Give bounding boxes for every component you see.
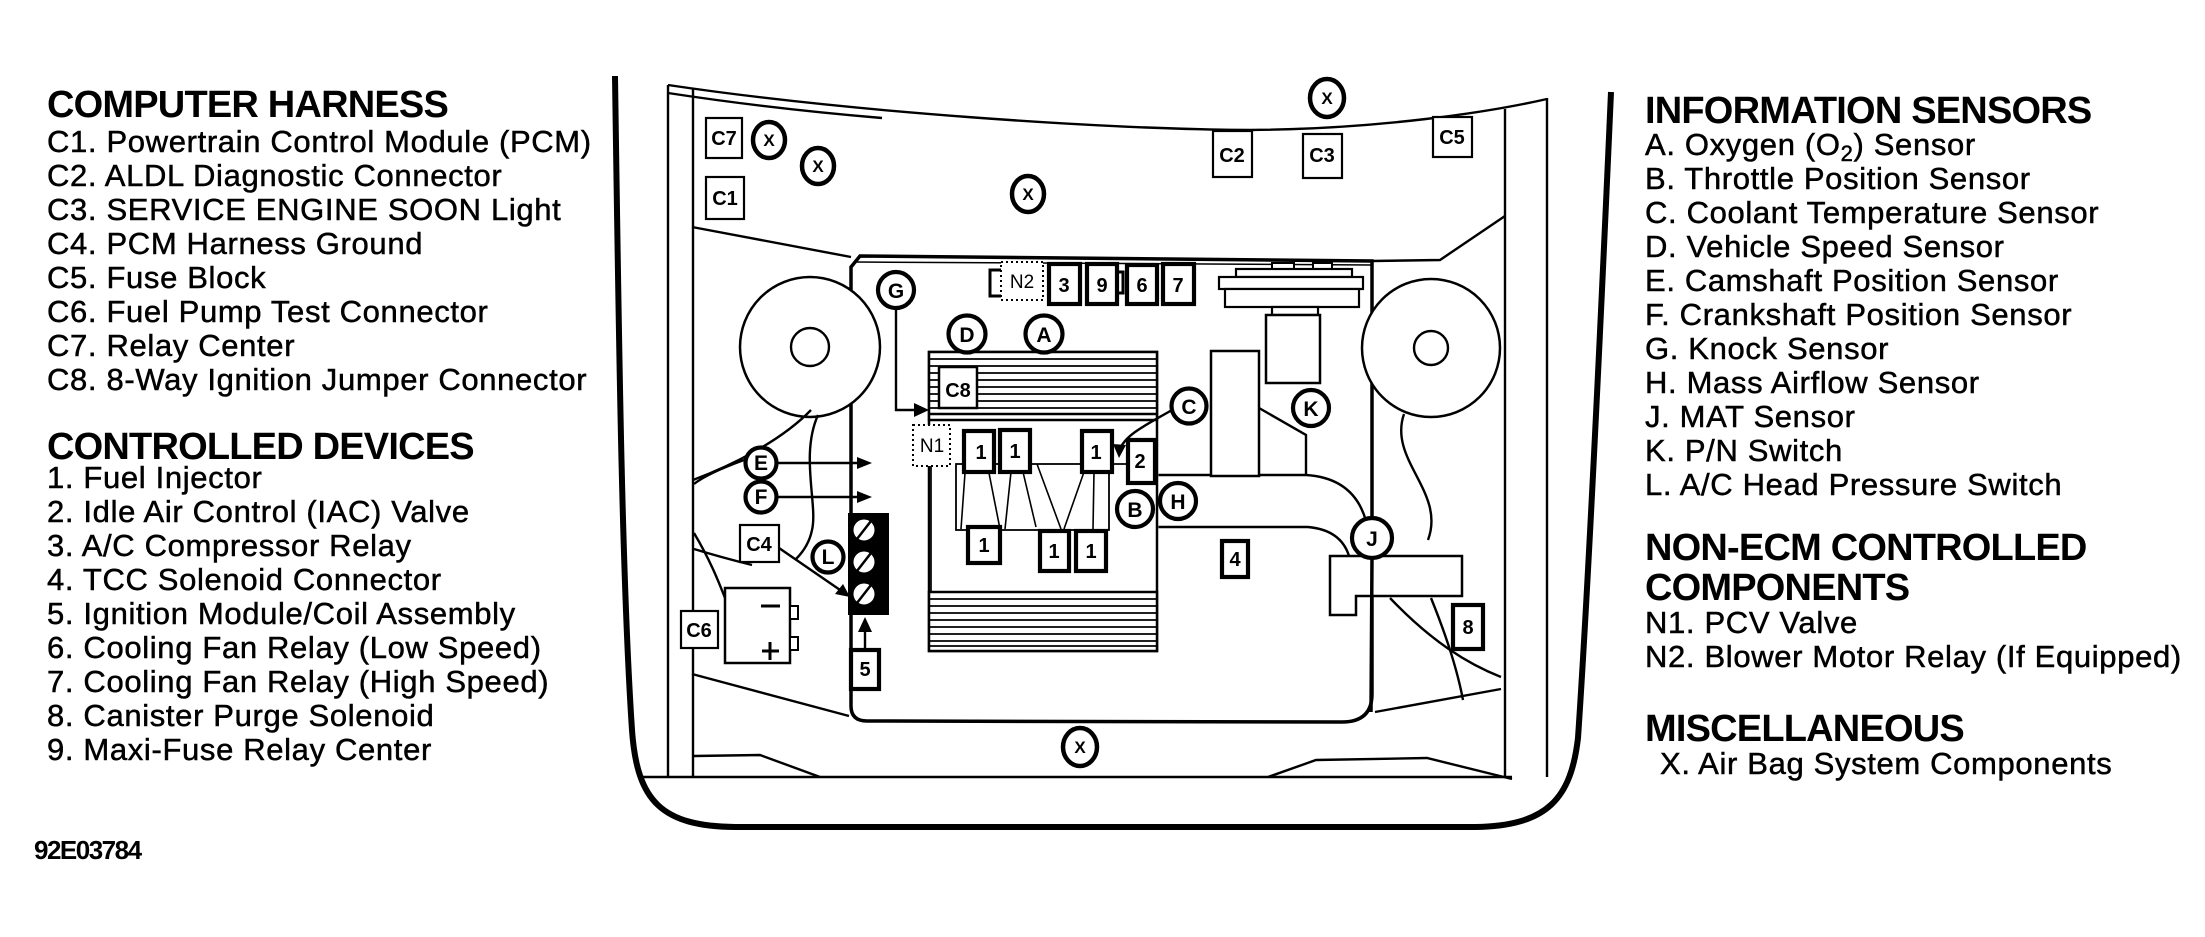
svg-text:D: D bbox=[959, 324, 974, 347]
svg-text:K: K bbox=[1303, 398, 1318, 421]
svg-text:B: B bbox=[1127, 499, 1142, 522]
svg-text:C8: C8 bbox=[945, 380, 971, 402]
svg-text:X: X bbox=[1321, 89, 1333, 108]
svg-text:G: G bbox=[888, 280, 904, 303]
svg-text:6: 6 bbox=[1136, 275, 1147, 297]
svg-text:C3: C3 bbox=[1309, 145, 1335, 167]
svg-text:3: 3 bbox=[1058, 275, 1069, 297]
svg-text:N2: N2 bbox=[1010, 272, 1034, 293]
svg-text:2: 2 bbox=[1134, 451, 1145, 473]
svg-text:C5: C5 bbox=[1439, 127, 1465, 149]
svg-text:1: 1 bbox=[1048, 541, 1059, 563]
svg-text:7: 7 bbox=[1172, 275, 1183, 297]
svg-text:X: X bbox=[1074, 738, 1086, 757]
svg-text:C1: C1 bbox=[712, 188, 738, 210]
svg-text:1: 1 bbox=[978, 535, 989, 557]
svg-text:9: 9 bbox=[1096, 275, 1107, 297]
svg-text:C7: C7 bbox=[711, 128, 737, 150]
svg-text:8: 8 bbox=[1462, 617, 1473, 639]
svg-text:C2: C2 bbox=[1219, 145, 1245, 167]
svg-text:J: J bbox=[1366, 528, 1378, 551]
svg-text:X: X bbox=[812, 157, 824, 176]
svg-text:X: X bbox=[1022, 185, 1034, 204]
svg-text:F: F bbox=[755, 486, 768, 509]
svg-text:1: 1 bbox=[975, 442, 986, 464]
svg-text:H: H bbox=[1170, 491, 1185, 514]
svg-text:L: L bbox=[822, 546, 835, 569]
svg-text:A: A bbox=[1036, 324, 1051, 347]
svg-text:1: 1 bbox=[1085, 541, 1096, 563]
svg-text:E: E bbox=[754, 452, 768, 475]
svg-text:1: 1 bbox=[1090, 442, 1101, 464]
svg-text:5: 5 bbox=[859, 659, 870, 681]
svg-text:C: C bbox=[1181, 396, 1196, 419]
svg-text:C6: C6 bbox=[686, 620, 712, 642]
svg-text:1: 1 bbox=[1009, 441, 1020, 463]
svg-text:C4: C4 bbox=[746, 534, 772, 556]
svg-text:4: 4 bbox=[1229, 549, 1241, 571]
svg-text:X: X bbox=[763, 131, 775, 150]
svg-text:N1: N1 bbox=[920, 436, 944, 457]
